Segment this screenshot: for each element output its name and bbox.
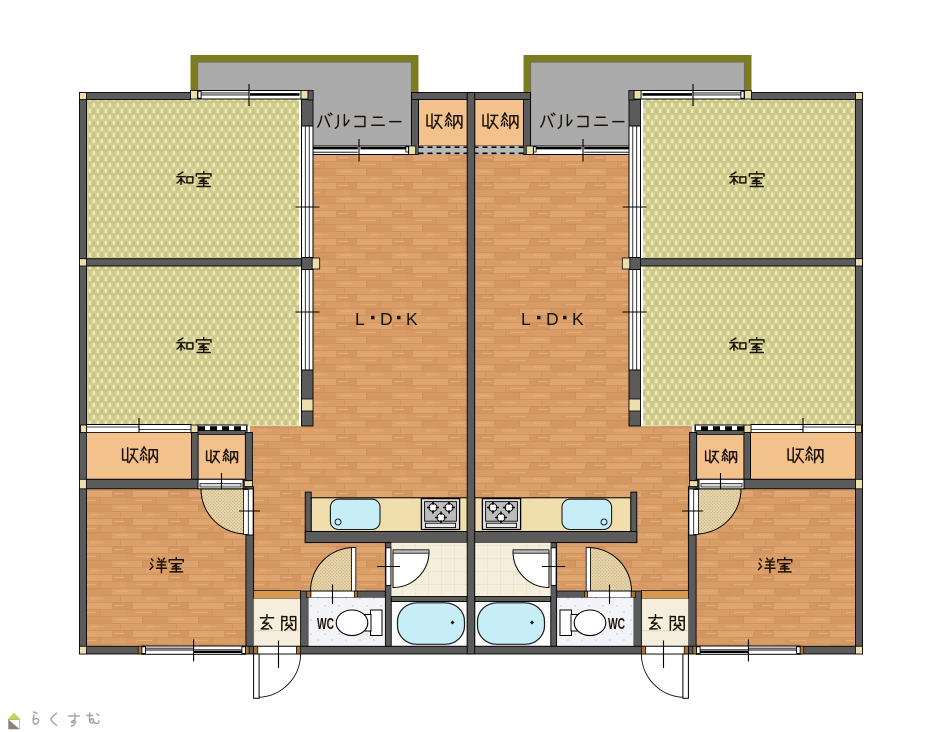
svg-text:L: L: [521, 309, 531, 329]
svg-text:L: L: [355, 309, 365, 329]
svg-text:D: D: [546, 309, 559, 329]
svg-text:WC: WC: [608, 616, 625, 633]
svg-text:WC: WC: [317, 616, 334, 633]
svg-text:K: K: [572, 309, 584, 329]
svg-text:K: K: [406, 309, 418, 329]
svg-text:D: D: [380, 309, 393, 329]
